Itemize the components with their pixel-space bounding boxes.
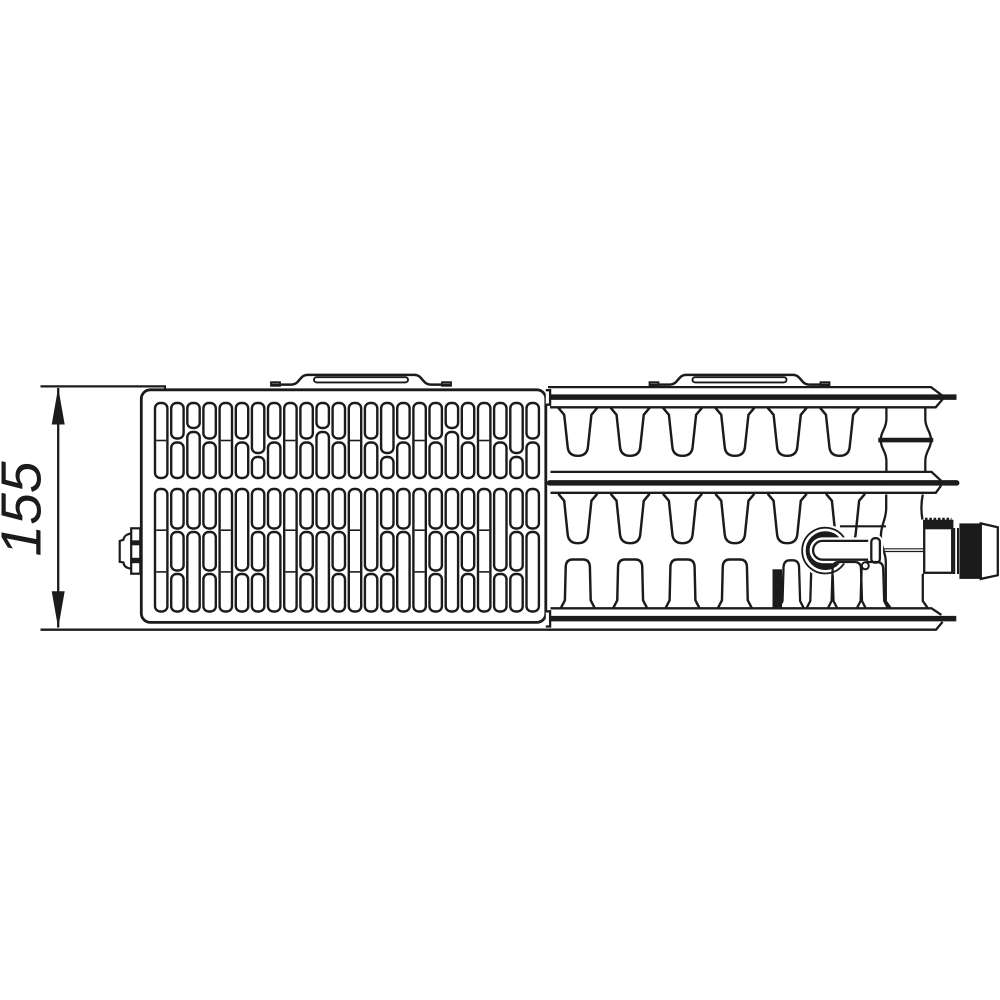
svg-text:155: 155 (0, 461, 54, 556)
